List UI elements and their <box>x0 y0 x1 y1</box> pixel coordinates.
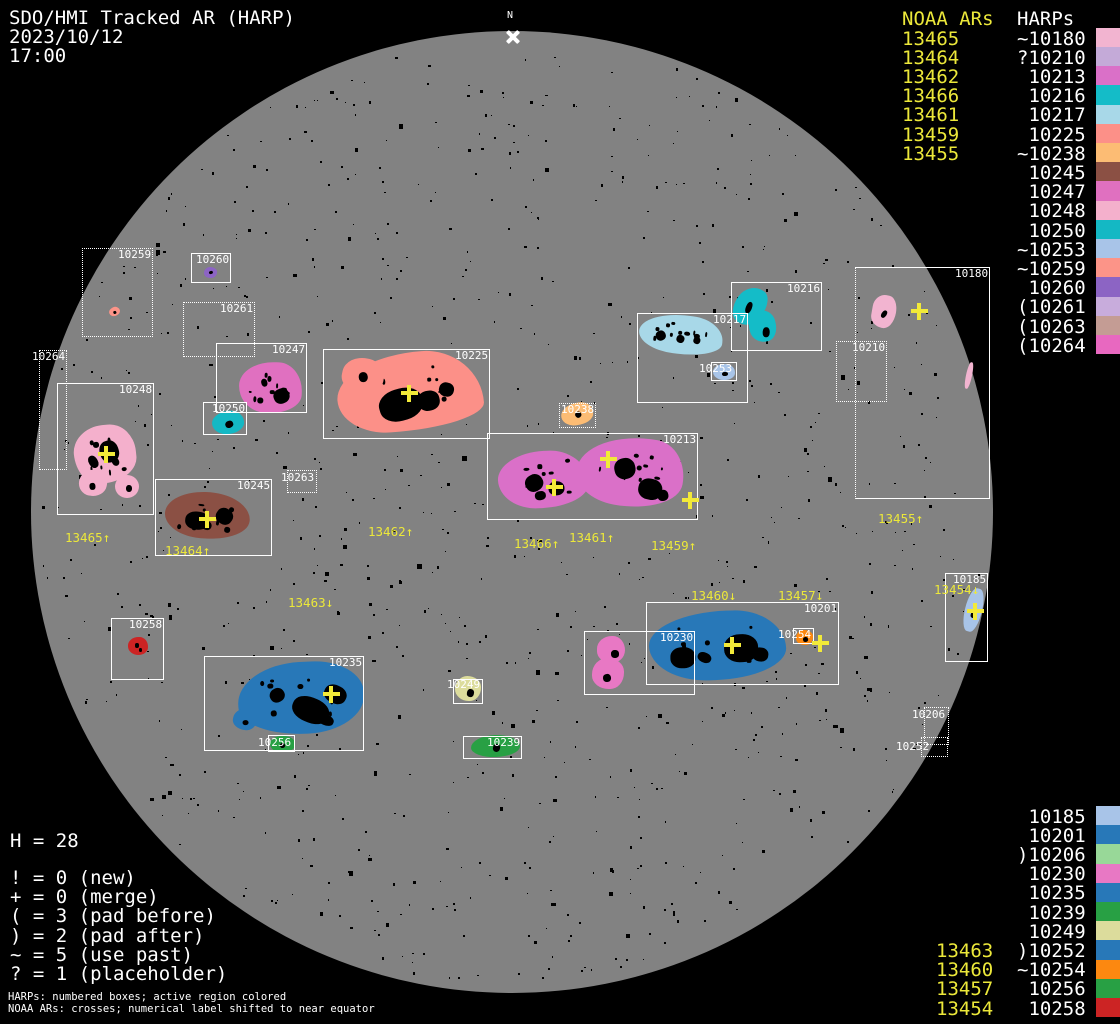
magnetogram-speckle <box>450 631 451 632</box>
magnetogram-speckle <box>85 701 87 704</box>
magnetogram-speckle <box>700 484 702 486</box>
magnetogram-speckle <box>512 774 514 777</box>
magnetogram-speckle <box>398 715 401 719</box>
legend-noaa-13457: 13457 <box>936 980 993 999</box>
magnetogram-speckle <box>70 559 72 561</box>
magnetogram-speckle <box>298 839 300 842</box>
magnetogram-speckle <box>341 538 342 539</box>
legend-noaa-13459: 13459 <box>902 126 959 145</box>
magnetogram-speckle <box>747 271 748 272</box>
magnetogram-speckle <box>377 911 379 913</box>
magnetogram-speckle <box>128 372 130 374</box>
magnetogram-speckle <box>545 140 547 142</box>
magnetogram-speckle <box>480 90 482 93</box>
magnetogram-speckle <box>163 251 166 253</box>
magnetogram-speckle <box>615 958 617 960</box>
magnetogram-speckle <box>374 312 376 314</box>
magnetogram-speckle <box>454 511 456 512</box>
magnetogram-speckle <box>479 133 480 135</box>
magnetogram-speckle <box>86 699 87 700</box>
magnetogram-speckle <box>611 72 613 73</box>
magnetogram-speckle <box>665 182 667 183</box>
legend-harp-~10238: ~10238 <box>1017 145 1086 164</box>
magnetogram-speckle <box>781 507 782 508</box>
magnetogram-speckle <box>368 858 372 861</box>
magnetogram-speckle <box>702 721 703 722</box>
magnetogram-speckle <box>938 695 939 696</box>
magnetogram-speckle <box>413 972 415 975</box>
magnetogram-speckle <box>662 407 663 408</box>
magnetogram-speckle <box>556 613 559 617</box>
magnetogram-speckle <box>325 572 329 576</box>
magnetogram-speckle <box>396 232 398 234</box>
color-swatch-10239 <box>1096 902 1120 921</box>
magnetogram-speckle <box>209 364 213 367</box>
magnetogram-speckle <box>399 581 402 584</box>
magnetogram-speckle <box>514 555 516 558</box>
legend-harp-)10252: )10252 <box>1017 942 1086 961</box>
magnetogram-speckle <box>924 702 926 704</box>
magnetogram-speckle <box>409 904 411 906</box>
magnetogram-speckle <box>505 877 508 880</box>
magnetogram-speckle <box>616 623 618 625</box>
magnetogram-speckle <box>731 134 733 137</box>
magnetogram-speckle <box>555 776 557 778</box>
magnetogram-speckle <box>204 771 206 773</box>
magnetogram-speckle <box>494 137 495 139</box>
magnetogram-speckle <box>574 356 577 361</box>
magnetogram-speckle <box>762 850 765 853</box>
color-swatch-10248 <box>1096 201 1120 220</box>
magnetogram-speckle <box>683 183 685 185</box>
harp-box-label-10235: 10235 <box>329 657 362 668</box>
magnetogram-speckle <box>461 867 462 869</box>
magnetogram-speckle <box>201 169 203 171</box>
magnetogram-speckle <box>458 641 460 643</box>
magnetogram-speckle <box>336 98 338 100</box>
magnetogram-speckle <box>808 499 810 501</box>
magnetogram-speckle <box>528 135 529 137</box>
magnetogram-speckle <box>346 492 347 493</box>
magnetogram-speckle <box>293 520 294 521</box>
magnetogram-speckle <box>253 607 255 609</box>
magnetogram-speckle <box>63 577 65 579</box>
magnetogram-speckle <box>347 338 349 340</box>
magnetogram-speckle <box>637 139 638 140</box>
legend-harp-~10180: ~10180 <box>1017 30 1086 49</box>
magnetogram-speckle <box>253 165 255 168</box>
magnetogram-speckle <box>895 532 896 533</box>
magnetogram-speckle <box>671 903 673 905</box>
magnetogram-speckle <box>303 752 305 754</box>
magnetogram-speckle <box>384 469 386 471</box>
noaa-label-13455: 13455↑ <box>878 512 923 525</box>
color-swatch-10185 <box>1096 806 1120 825</box>
magnetogram-speckle <box>317 565 318 566</box>
magnetogram-speckle <box>502 92 504 94</box>
magnetogram-speckle <box>761 726 763 728</box>
magnetogram-speckle <box>168 791 172 795</box>
harp-box-label-10225: 10225 <box>455 350 488 361</box>
magnetogram-speckle <box>773 790 775 791</box>
magnetogram-speckle <box>581 970 583 972</box>
magnetogram-speckle <box>593 557 594 558</box>
magnetogram-speckle <box>719 582 721 584</box>
magnetogram-speckle <box>665 821 666 822</box>
color-swatch-10216 <box>1096 85 1120 104</box>
magnetogram-speckle <box>620 966 622 968</box>
magnetogram-speckle <box>161 333 163 334</box>
magnetogram-speckle <box>489 875 491 877</box>
magnetogram-speckle <box>503 97 504 98</box>
magnetogram-speckle <box>726 561 728 563</box>
magnetogram-speckle <box>929 505 933 509</box>
magnetogram-speckle <box>872 531 873 532</box>
legend-harp-(10264: (10264 <box>1017 337 1086 356</box>
magnetogram-speckle <box>315 506 317 508</box>
magnetogram-speckle <box>447 532 449 534</box>
magnetogram-speckle <box>754 402 755 403</box>
magnetogram-speckle <box>330 91 334 93</box>
magnetogram-speckle <box>779 793 781 795</box>
magnetogram-speckle <box>438 462 440 464</box>
magnetogram-speckle <box>557 700 559 701</box>
magnetogram-speckle <box>212 451 214 453</box>
magnetogram-speckle <box>912 568 914 570</box>
magnetogram-speckle <box>943 529 945 531</box>
magnetogram-speckle <box>193 798 194 800</box>
color-swatch-10230 <box>1096 864 1120 883</box>
magnetogram-speckle <box>612 870 614 872</box>
magnetogram-speckle <box>374 771 378 776</box>
magnetogram-speckle <box>406 257 408 259</box>
color-swatch-(10261 <box>1096 297 1120 316</box>
magnetogram-speckle <box>65 595 67 597</box>
magnetogram-speckle <box>194 443 195 445</box>
magnetogram-speckle <box>579 357 581 360</box>
magnetogram-speckle <box>676 184 677 185</box>
magnetogram-speckle <box>367 565 369 567</box>
magnetogram-speckle <box>384 192 386 194</box>
color-swatch-?10210 <box>1096 47 1120 66</box>
magnetogram-speckle <box>182 798 183 799</box>
magnetogram-speckle <box>544 757 545 758</box>
color-swatch-10250 <box>1096 220 1120 239</box>
magnetogram-speckle <box>584 967 586 968</box>
magnetogram-speckle <box>673 220 674 222</box>
magnetogram-speckle <box>485 635 488 638</box>
magnetogram-speckle <box>424 610 426 612</box>
magnetogram-speckle <box>130 561 132 563</box>
magnetogram-speckle <box>170 764 173 767</box>
magnetogram-speckle <box>227 135 228 137</box>
magnetogram-speckle <box>554 57 556 59</box>
color-swatch-(10263 <box>1096 316 1120 335</box>
magnetogram-speckle <box>308 785 310 786</box>
magnetogram-speckle <box>445 623 446 624</box>
magnetogram-speckle <box>913 544 915 545</box>
magnetogram-speckle <box>270 589 271 591</box>
magnetogram-speckle <box>390 585 393 588</box>
harp-box-label-10206: 10206 <box>912 709 945 720</box>
harp-box-label-10238: 10238 <box>561 404 594 415</box>
magnetogram-speckle <box>511 724 514 728</box>
magnetogram-speckle <box>355 174 356 175</box>
magnetogram-speckle <box>359 522 361 523</box>
harp-box-label-10201: 10201 <box>804 603 837 614</box>
magnetogram-speckle <box>491 115 492 116</box>
legend-harp-10250: 10250 <box>1017 222 1086 241</box>
magnetogram-speckle <box>871 591 873 593</box>
magnetogram-speckle <box>317 100 318 102</box>
color-swatch-10247 <box>1096 181 1120 200</box>
magnetogram-speckle <box>864 656 868 660</box>
legend-harp-10260: 10260 <box>1017 279 1086 298</box>
magnetogram-speckle <box>525 206 527 208</box>
magnetogram-speckle <box>780 756 782 758</box>
magnetogram-speckle <box>842 525 844 527</box>
magnetogram-speckle <box>718 560 719 561</box>
magnetogram-speckle <box>288 203 290 205</box>
harp-box-label-10258: 10258 <box>129 619 162 630</box>
legend-harp-(10263: (10263 <box>1017 318 1086 337</box>
magnetogram-speckle <box>369 855 370 856</box>
magnetogram-speckle <box>171 193 172 194</box>
magnetogram-speckle <box>468 85 470 87</box>
magnetogram-speckle <box>217 439 219 441</box>
magnetogram-speckle <box>751 385 753 387</box>
magnetogram-speckle <box>260 797 261 798</box>
magnetogram-speckle <box>314 229 316 230</box>
magnetogram-speckle <box>413 881 416 884</box>
magnetogram-speckle <box>856 671 858 674</box>
magnetogram-speckle <box>518 973 520 975</box>
magnetogram-speckle <box>409 774 410 776</box>
magnetogram-speckle <box>271 900 273 902</box>
magnetogram-speckle <box>440 881 441 882</box>
magnetogram-speckle <box>549 841 551 843</box>
noaa-cross-13464 <box>199 511 216 528</box>
magnetogram-speckle <box>553 836 555 837</box>
magnetogram-speckle <box>677 131 678 132</box>
magnetogram-speckle <box>159 720 161 723</box>
magnetogram-speckle <box>648 155 649 156</box>
magnetogram-speckle <box>531 212 532 213</box>
magnetogram-speckle <box>552 956 554 958</box>
magnetogram-speckle <box>468 149 471 152</box>
magnetogram-speckle <box>466 658 468 660</box>
color-swatch-10260 <box>1096 277 1120 296</box>
magnetogram-speckle <box>716 182 718 184</box>
harp-box-10213 <box>487 433 698 520</box>
magnetogram-speckle <box>167 332 169 334</box>
magnetogram-speckle <box>255 439 258 442</box>
magnetogram-speckle <box>335 795 336 796</box>
magnetogram-speckle <box>600 363 601 364</box>
magnetogram-speckle <box>648 558 651 560</box>
magnetogram-speckle <box>234 201 236 202</box>
magnetogram-speckle <box>435 192 436 193</box>
magnetogram-speckle <box>380 322 382 324</box>
magnetogram-speckle <box>643 959 644 960</box>
magnetogram-speckle <box>288 432 289 433</box>
magnetogram-speckle <box>807 471 809 473</box>
harp-box-10217 <box>637 313 748 403</box>
magnetogram-speckle <box>486 545 488 547</box>
magnetogram-speckle <box>717 168 719 170</box>
magnetogram-speckle <box>695 882 697 885</box>
magnetogram-speckle <box>68 638 70 640</box>
magnetogram-speckle <box>467 251 468 253</box>
magnetogram-speckle <box>536 710 538 711</box>
magnetogram-speckle <box>651 783 652 784</box>
magnetogram-speckle <box>168 197 170 200</box>
magnetogram-speckle <box>202 647 206 650</box>
magnetogram-speckle <box>894 565 896 566</box>
magnetogram-speckle <box>508 228 510 230</box>
magnetogram-speckle <box>177 608 179 610</box>
magnetogram-speckle <box>376 743 379 746</box>
magnetogram-speckle <box>418 184 420 185</box>
magnetogram-speckle <box>245 888 246 890</box>
magnetogram-speckle <box>281 648 282 649</box>
magnetogram-speckle <box>283 629 285 631</box>
magnetogram-speckle <box>769 155 770 156</box>
magnetogram-speckle <box>749 124 751 126</box>
magnetogram-speckle <box>718 92 720 93</box>
magnetogram-speckle <box>810 426 812 428</box>
color-swatch-~10180 <box>1096 28 1120 47</box>
color-swatch-10235 <box>1096 883 1120 902</box>
magnetogram-speckle <box>243 791 244 792</box>
magnetogram-speckle <box>742 687 744 689</box>
legend-noaa-13455: 13455 <box>902 145 959 164</box>
magnetogram-speckle <box>314 458 315 459</box>
magnetogram-speckle <box>829 351 831 353</box>
magnetogram-speckle <box>611 156 612 157</box>
magnetogram-speckle <box>263 420 264 421</box>
magnetogram-speckle <box>348 237 351 241</box>
magnetogram-speckle <box>840 728 844 733</box>
magnetogram-speckle <box>340 564 342 567</box>
harp-box-label-10261: 10261 <box>220 303 253 314</box>
magnetogram-speckle <box>437 566 440 569</box>
magnetogram-speckle <box>281 568 282 570</box>
magnetogram-speckle <box>467 95 471 97</box>
magnetogram-speckle <box>168 603 172 608</box>
legend-harp-10239: 10239 <box>1017 904 1086 923</box>
magnetogram-speckle <box>696 78 698 80</box>
magnetogram-speckle <box>106 701 107 702</box>
legend-harp-10247: 10247 <box>1017 183 1086 202</box>
magnetogram-speckle <box>417 564 421 569</box>
magnetogram-speckle <box>637 868 639 870</box>
magnetogram-speckle <box>462 276 464 277</box>
harp-box-10259 <box>82 248 153 337</box>
legend-harp-10258: 10258 <box>1017 1000 1086 1019</box>
magnetogram-speckle <box>538 219 539 220</box>
magnetogram-speckle <box>150 798 154 802</box>
magnetogram-speckle <box>629 323 631 325</box>
magnetogram-speckle <box>420 475 421 477</box>
magnetogram-speckle <box>735 98 738 102</box>
noaa-label-13459: 13459↑ <box>651 539 696 552</box>
magnetogram-speckle <box>270 646 274 650</box>
magnetogram-speckle <box>246 186 248 188</box>
magnetogram-speckle <box>763 249 764 250</box>
magnetogram-speckle <box>778 707 780 708</box>
magnetogram-speckle <box>788 476 790 477</box>
magnetogram-speckle <box>538 423 540 425</box>
magnetogram-speckle <box>350 927 352 929</box>
magnetogram-speckle <box>156 250 160 255</box>
magnetogram-speckle <box>266 277 268 278</box>
harp-box-label-10264: 10264 <box>32 351 65 362</box>
magnetogram-speckle <box>704 920 705 922</box>
magnetogram-speckle <box>673 593 675 594</box>
magnetogram-speckle <box>513 125 515 127</box>
magnetogram-speckle <box>266 601 267 602</box>
magnetogram-speckle <box>237 783 239 784</box>
magnetogram-speckle <box>110 681 112 683</box>
magnetogram-speckle <box>735 749 737 751</box>
magnetogram-speckle <box>656 186 658 188</box>
magnetogram-speckle <box>688 597 690 599</box>
magnetogram-speckle <box>537 629 540 631</box>
magnetogram-speckle <box>819 720 820 722</box>
magnetogram-speckle <box>441 487 442 488</box>
magnetogram-speckle <box>847 841 849 843</box>
legend-harp-10185: 10185 <box>1017 808 1086 827</box>
magnetogram-speckle <box>508 124 509 125</box>
magnetogram-speckle <box>530 101 533 105</box>
magnetogram-speckle <box>298 754 299 755</box>
magnetogram-speckle <box>823 263 824 264</box>
magnetogram-speckle <box>570 626 572 628</box>
magnetogram-speckle <box>953 559 954 560</box>
magnetogram-speckle <box>755 734 757 736</box>
magnetogram-speckle <box>374 930 376 931</box>
magnetogram-speckle <box>764 246 765 247</box>
magnetogram-speckle <box>856 533 857 534</box>
magnetogram-speckle <box>528 935 530 937</box>
magnetogram-speckle <box>567 395 569 398</box>
magnetogram-speckle <box>784 219 787 222</box>
magnetogram-speckle <box>181 729 182 730</box>
magnetogram-speckle <box>453 782 454 783</box>
magnetogram-speckle <box>324 580 327 583</box>
magnetogram-speckle <box>246 296 248 298</box>
magnetogram-speckle <box>559 66 560 67</box>
harp-box-label-10259: 10259 <box>118 249 151 260</box>
magnetogram-speckle <box>604 606 606 608</box>
magnetogram-speckle <box>302 810 304 812</box>
magnetogram-speckle <box>545 168 549 172</box>
magnetogram-speckle <box>474 503 476 505</box>
magnetogram-speckle <box>156 243 160 248</box>
magnetogram-speckle <box>835 189 837 191</box>
magnetogram-speckle <box>179 844 181 845</box>
legend-harp-10230: 10230 <box>1017 865 1086 884</box>
magnetogram-speckle <box>886 760 887 761</box>
magnetogram-speckle <box>840 747 842 748</box>
magnetogram-speckle <box>612 362 613 363</box>
magnetogram-speckle <box>576 106 577 107</box>
magnetogram-speckle <box>639 799 640 800</box>
magnetogram-speckle <box>423 953 425 955</box>
magnetogram-speckle <box>867 700 868 701</box>
magnetogram-speckle <box>567 914 569 916</box>
